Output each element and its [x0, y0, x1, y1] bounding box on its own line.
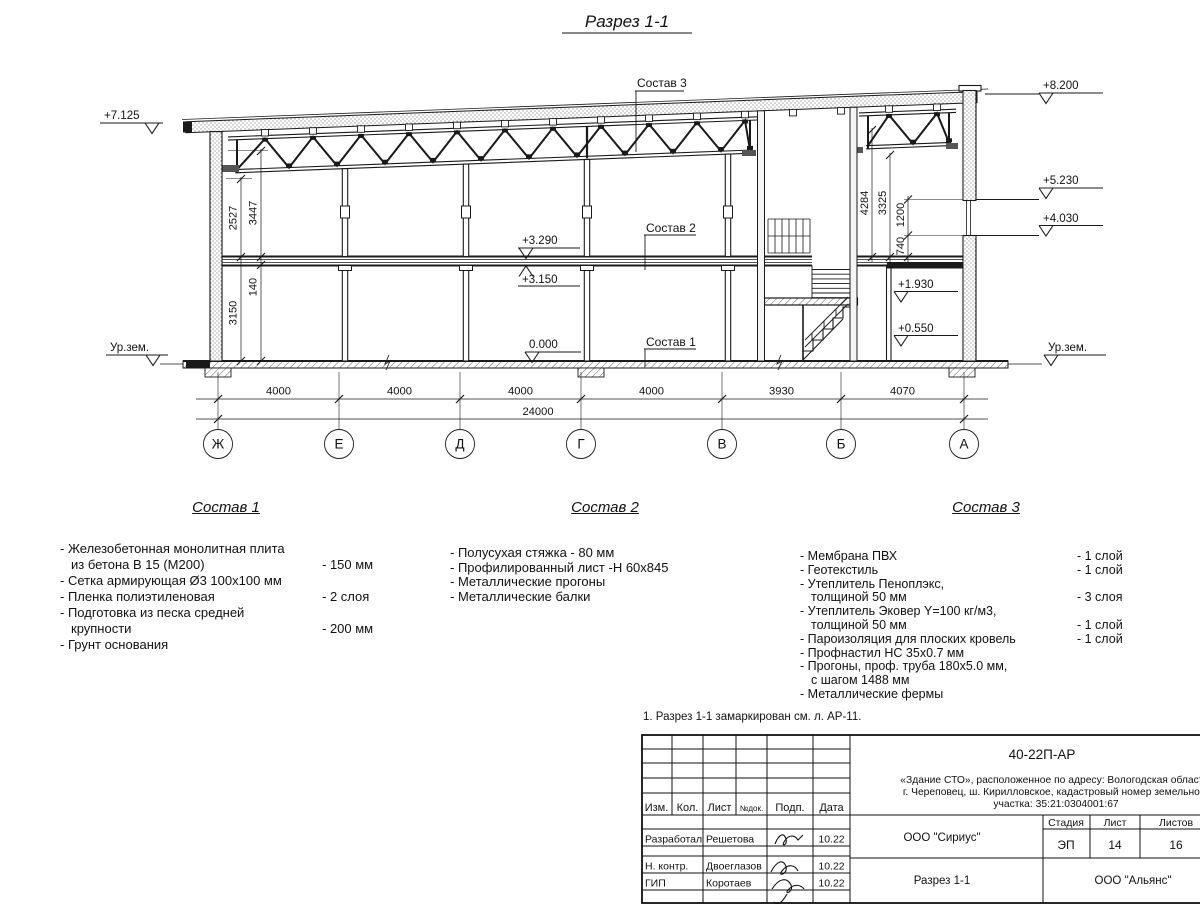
shaft-wall-left [758, 111, 765, 361]
composition-row: - Утеплитель Эковер Y=100 кг/м3, [800, 605, 1172, 619]
axis-letter: Ж [212, 437, 225, 452]
sheets-label: Листов [1159, 817, 1194, 829]
elevation-label: +0.550 [898, 323, 934, 335]
composition-row: - Грунт основания [60, 637, 392, 653]
col-doc: №док. [740, 804, 763, 813]
doc-number: 40-22П-АР [1009, 747, 1076, 762]
title-block: Изм. Кол. Лист №док. Подп. Дата Разработ… [641, 734, 1200, 904]
composition-row: крупности- 200 мм [60, 621, 392, 637]
composition-row: - Полусухая стяжка - 80 мм [450, 546, 760, 561]
design-org: ООО "Сириус" [903, 832, 980, 844]
elevation-label: 0.000 [529, 339, 558, 351]
elevation-label: +3.290 [522, 235, 558, 247]
dim-label: 4284 [859, 191, 871, 215]
composition-row: - Железобетонная монолитная плита [60, 541, 392, 557]
bay-dim-label: 4000 [508, 386, 533, 398]
dim-label: 3447 [248, 201, 260, 225]
bay-dim-label: 4000 [639, 386, 664, 398]
sheet-label: Лист [1104, 817, 1127, 829]
bay-dim-label: 4000 [266, 386, 291, 398]
signature [771, 862, 804, 904]
role-gip: ГИП [645, 878, 666, 890]
right-wall [963, 91, 976, 362]
elevation-label: +4.030 [1043, 213, 1079, 225]
role-ncontrol: Н. контр. [645, 861, 688, 873]
column-lower [342, 266, 347, 362]
composition-row: толщиной 50 мм- 3 слоя [800, 591, 1172, 605]
composition-row: - Подготовка из песка средней [60, 605, 392, 621]
col-izm: Изм. [645, 802, 669, 814]
elevation-label: +7.125 [104, 110, 140, 122]
axis-grid: ЖЕДГВБА400040004000400039304070 [196, 372, 988, 459]
total-dimension: 24000 [196, 406, 988, 423]
composition-list-1: Состав 1 - Железобетонная монолитная пли… [60, 500, 392, 653]
roof-truss-right [851, 109, 958, 153]
signature [775, 835, 803, 845]
bay-dim-label: 4070 [890, 386, 915, 398]
axis-letter: В [717, 437, 726, 452]
elevation-label: +5.230 [1043, 175, 1079, 187]
composition-row: - Пленка полиэтиленовая- 2 слоя [60, 589, 392, 605]
composition-row: - Профнастил НС 35х0.7 мм [800, 647, 1172, 661]
composition-row: - Металлические балки [450, 590, 760, 605]
ground-level-label: Ур.зем. [110, 342, 149, 354]
composition-row: - Металлические фермы [800, 688, 1172, 702]
composition-title: Состав 1 [60, 500, 392, 516]
shaft-wall-right [850, 107, 857, 361]
date: 10.22 [818, 878, 844, 890]
leader-label: Состав 2 [646, 221, 696, 235]
sheet-name: Разрез 1-1 [914, 875, 970, 887]
composition-title: Состав 2 [450, 500, 760, 516]
ground-slab [160, 355, 1042, 377]
edge-beam [887, 262, 963, 269]
stage-value: ЭП [1057, 838, 1074, 852]
name-ncontrol: Двоеглазов [706, 861, 762, 873]
date: 10.22 [818, 834, 844, 846]
name-gip: Коротаев [706, 878, 752, 890]
sheet-title: Разрез 1-1 [585, 12, 669, 31]
leader-label: Состав 3 [637, 76, 687, 90]
dim-label: 740 [895, 237, 907, 255]
dim-label: 3325 [877, 191, 889, 215]
dim-label: 2527 [228, 206, 240, 230]
column-lower [725, 266, 730, 362]
name-developed: Решетова [706, 834, 754, 846]
sheet-note: 1. Разрез 1-1 замаркирован см. л. АР-11. [643, 711, 861, 723]
composition-row: - Утеплитель Пеноплэкс, [800, 578, 1172, 592]
total-dim-label: 24000 [522, 406, 553, 418]
window [963, 201, 976, 236]
dim-label: 1200 [895, 203, 907, 227]
composition-list-3: Состав 3 - Мембрана ПВХ- 1 слой- Геотекс… [800, 500, 1172, 702]
stage-label: Стадия [1048, 817, 1084, 829]
axis-letter: А [959, 437, 968, 452]
project-line: «Здание СТО», расположенное по адресу: В… [900, 774, 1200, 786]
inner-wall [887, 266, 892, 362]
col-list: Лист [708, 802, 732, 814]
left-wall [210, 132, 222, 361]
project-line: участка: 35:21:0304001:67 [993, 799, 1119, 810]
column-lower [463, 266, 468, 362]
composition-list-2: Состав 2 - Полусухая стяжка - 80 мм- Про… [450, 500, 760, 604]
axis-letter: Б [837, 437, 846, 452]
stair-railing-grid [768, 219, 810, 253]
columns [339, 154, 735, 361]
composition-row: - Прогоны, проф. труба 180х5.0 мм, [800, 660, 1172, 674]
composition-row: - Геотекстиль- 1 слой [800, 564, 1172, 578]
sheet-number: 14 [1108, 838, 1122, 852]
composition-row: - Пароизоляция для плоских кровель- 1 сл… [800, 633, 1172, 647]
ground-level-label: Ур.зем. [1048, 342, 1087, 354]
composition-row: толщиной 50 мм- 1 слой [800, 619, 1172, 633]
leader-label: Состав 1 [646, 335, 696, 349]
composition-row: из бетона В 15 (М200)- 150 мм [60, 557, 392, 573]
upper-flight [812, 266, 850, 299]
col-data: Дата [819, 802, 844, 814]
drawing-sheet: { "page": {"background": "#ffffff", "lin… [0, 0, 1200, 900]
apron-block [186, 361, 210, 368]
dim-label: 3150 [228, 301, 240, 325]
date: 10.22 [818, 861, 844, 873]
elevation-label: +1.930 [898, 279, 934, 291]
staircase [765, 219, 858, 361]
column-upper [725, 154, 730, 256]
roof-edge-cap [183, 122, 192, 133]
composition-row: - Мембрана ПВХ- 1 слой [800, 550, 1172, 564]
dim-label: 140 [248, 278, 260, 296]
sheets-total: 16 [1169, 838, 1183, 852]
col-podp: Подп. [775, 802, 804, 814]
composition-row: - Сетка армирующая Ø3 100х100 мм [60, 573, 392, 589]
project-line: г. Череповец, ш. Кирилловское, кадастров… [903, 787, 1200, 798]
bay-dim-label: 3930 [769, 386, 794, 398]
col-kol: Кол. [677, 802, 699, 814]
composition-title: Состав 3 [800, 500, 1172, 516]
customer-org: ООО "Альянс" [1095, 875, 1172, 887]
column-lower [584, 266, 589, 362]
composition-row: с шагом 1488 мм [800, 674, 1172, 688]
axis-letter: Г [577, 437, 585, 452]
composition-row: - Профилированный лист -Н 60х845 [450, 561, 760, 576]
composition-row: - Металлические прогоны [450, 575, 760, 590]
role-developed: Разработал [645, 834, 702, 846]
section-drawing: Разрез 1-1 [0, 0, 1200, 475]
axis-letter: Е [334, 437, 343, 452]
axis-letter: Д [455, 437, 464, 452]
elevation-label: +3.150 [522, 274, 558, 286]
bay-dim-label: 4000 [387, 386, 412, 398]
elevation-label: +8.200 [1043, 80, 1079, 92]
